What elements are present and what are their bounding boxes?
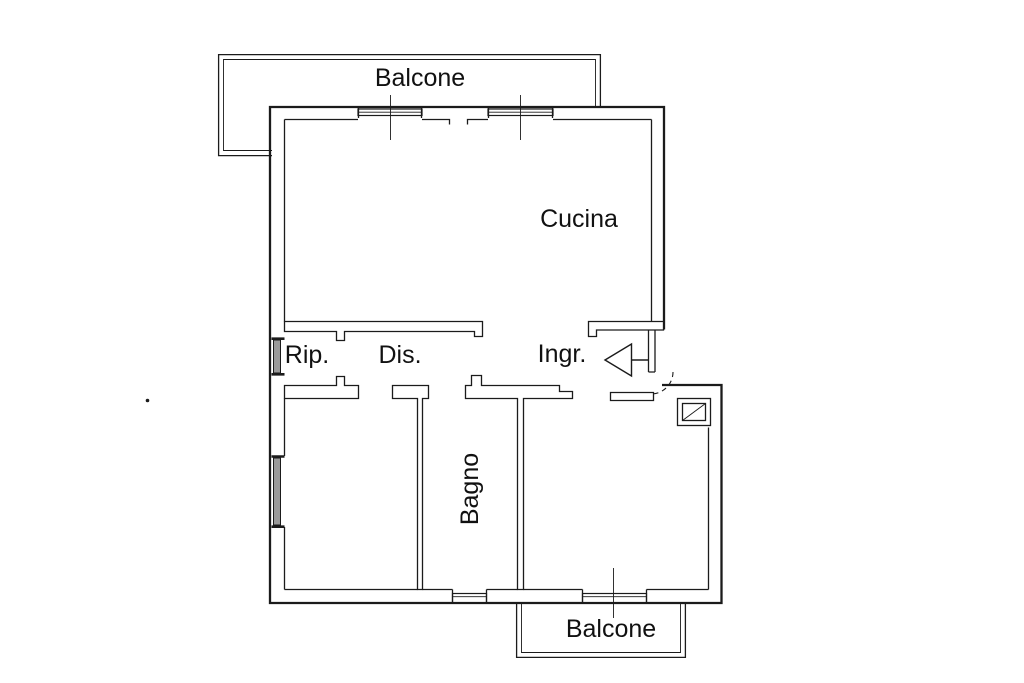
entrance-arrow-icon	[605, 344, 632, 376]
wall-ingresso-bottom	[611, 393, 654, 401]
window-cucina-left	[358, 95, 422, 140]
room-label-balcone-bottom: Balcone	[566, 615, 656, 643]
shaft-diagonal	[683, 404, 706, 421]
window-frame	[583, 594, 647, 603]
window-room-left	[272, 457, 285, 527]
window-bedroom	[583, 568, 647, 618]
window-bagno	[453, 590, 487, 604]
wall-entrance-side	[649, 330, 656, 372]
wall-corridor-top	[285, 322, 483, 341]
stray-dot	[146, 399, 150, 403]
door-swing-arc-icon	[651, 372, 673, 394]
window-rip	[272, 339, 285, 375]
room-label-rip: Rip.	[285, 341, 329, 369]
room-label-dis: Dis.	[378, 341, 421, 369]
floor-plan-svg: Balcone Cucina Rip. Dis. Ingr. Bagno Bal…	[0, 0, 1024, 683]
wall-bagno-left	[393, 386, 429, 590]
room-label-bagno: Bagno	[456, 453, 484, 525]
floor-plan-page: Balcone Cucina Rip. Dis. Ingr. Bagno Bal…	[0, 0, 1024, 683]
inner-wall-lines	[285, 120, 709, 590]
wall-ingresso-top	[589, 322, 664, 337]
entrance	[605, 344, 673, 394]
shaft-symbol	[678, 399, 711, 426]
outer-wall	[270, 107, 722, 603]
room-label-cucina: Cucina	[540, 205, 618, 233]
window-frame	[453, 594, 487, 603]
window-frame	[274, 340, 281, 373]
room-label-balcone-top: Balcone	[375, 64, 465, 92]
window-cucina-right	[488, 95, 553, 140]
room-label-ingr: Ingr.	[538, 340, 587, 368]
wall-room-left-top	[285, 377, 359, 399]
window-frame	[274, 458, 281, 525]
